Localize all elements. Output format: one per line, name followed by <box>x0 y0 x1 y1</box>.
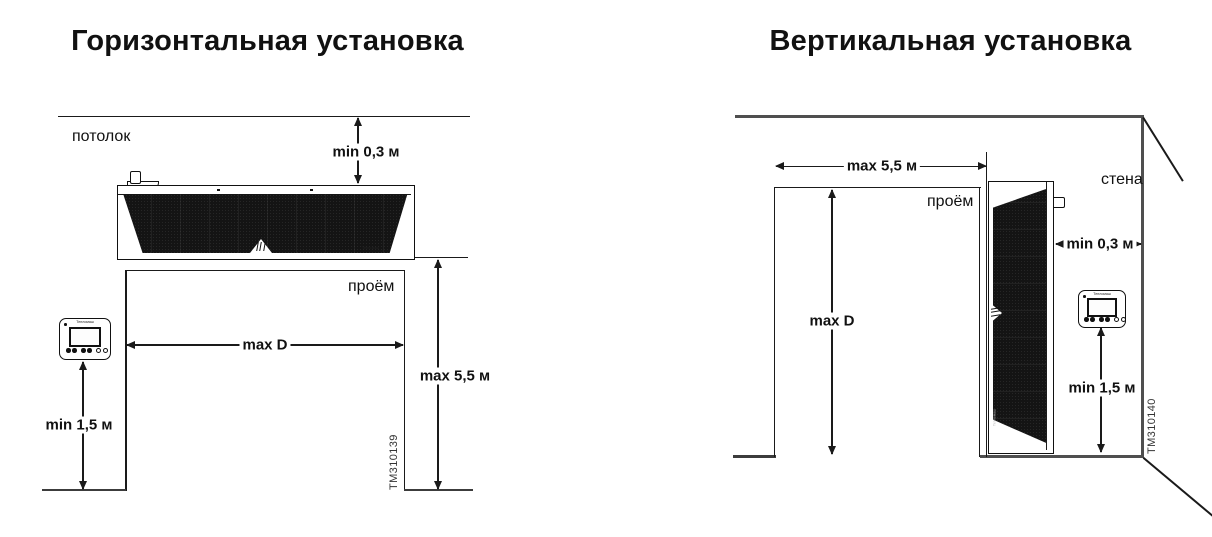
opening-label: проём <box>348 278 394 296</box>
wall-top-line <box>735 115 1144 118</box>
mounting-mark <box>310 189 313 192</box>
remote-button <box>1121 317 1126 322</box>
door-left-post <box>125 270 127 491</box>
ceiling-label: потолок <box>72 128 130 146</box>
door-left-post <box>774 187 776 458</box>
wall-label: стена <box>1101 171 1143 189</box>
dimension-ceiling-clearance-label: min 0,3 м <box>330 144 403 161</box>
air-curtain-unit-vertical: Тепломаш <box>988 181 1054 454</box>
unit-brand-label: Тепломаш <box>362 246 379 250</box>
air-intake-grille <box>993 188 1046 446</box>
wall-corner-diagonal-bottom <box>1143 457 1212 517</box>
teplomash-logo-icon <box>257 242 265 251</box>
remote-button <box>1099 317 1104 322</box>
remote-button <box>103 348 108 353</box>
remote-controller: Тепломаш <box>1078 290 1126 328</box>
remote-button <box>96 348 101 353</box>
figure-id: TM310139 <box>388 437 400 490</box>
remote-screen <box>1087 298 1117 317</box>
wall-vertical-line <box>1141 115 1144 458</box>
remote-button <box>87 348 92 353</box>
dimension-opening-height-label: max D <box>806 313 857 330</box>
door-right-post <box>404 270 406 491</box>
dimension-opening-width-label: max 5,5 м <box>844 158 920 175</box>
dimension-controller-height-label: min 1,5 м <box>1066 380 1139 397</box>
right-diagram-title: Вертикальная установка <box>728 25 1173 58</box>
figure-id: TM310140 <box>1146 401 1158 454</box>
air-curtain-unit-horizontal: Тепломаш <box>117 185 415 260</box>
door-right-post <box>979 187 981 458</box>
remote-controller: Тепломаш <box>59 318 111 360</box>
floor-line-left <box>733 455 776 457</box>
dimension-opening-width-label: max D <box>239 337 290 354</box>
opening-label: проём <box>927 193 973 211</box>
remote-buttons <box>66 348 110 353</box>
bracket-bolt <box>130 171 141 184</box>
remote-button <box>81 348 86 353</box>
left-diagram-title: Горизонтальная установка <box>60 25 475 58</box>
remote-button <box>1084 317 1089 322</box>
teplomash-logo-icon <box>991 308 1000 316</box>
remote-button <box>1090 317 1095 322</box>
dimension-opening-height-label: max 5,5 м <box>417 368 493 385</box>
remote-buttons <box>1084 317 1128 322</box>
remote-button <box>1105 317 1110 322</box>
ceiling-line <box>58 116 470 118</box>
mounting-mark <box>217 189 220 192</box>
door-opening-top-line <box>774 187 981 189</box>
floor-line-right <box>980 455 1143 458</box>
unit-brand-label: Тепломаш <box>993 408 997 426</box>
remote-screen <box>69 327 101 347</box>
remote-button <box>72 348 77 353</box>
remote-brand-label: Тепломаш <box>1085 292 1118 296</box>
remote-button <box>66 348 71 353</box>
remote-button <box>1114 317 1119 322</box>
remote-brand-label: Тепломаш <box>67 320 103 324</box>
installation-diagrams: Горизонтальная установка потолок Теплома… <box>0 0 1212 537</box>
unit-mounting-plane-line <box>986 152 987 457</box>
wall-corner-diagonal-top <box>1143 117 1184 181</box>
dimension-wall-clearance-label: min 0,3 м <box>1064 236 1137 253</box>
door-opening-top-line <box>125 270 405 272</box>
dimension-controller-height-label: min 1,5 м <box>43 417 116 434</box>
